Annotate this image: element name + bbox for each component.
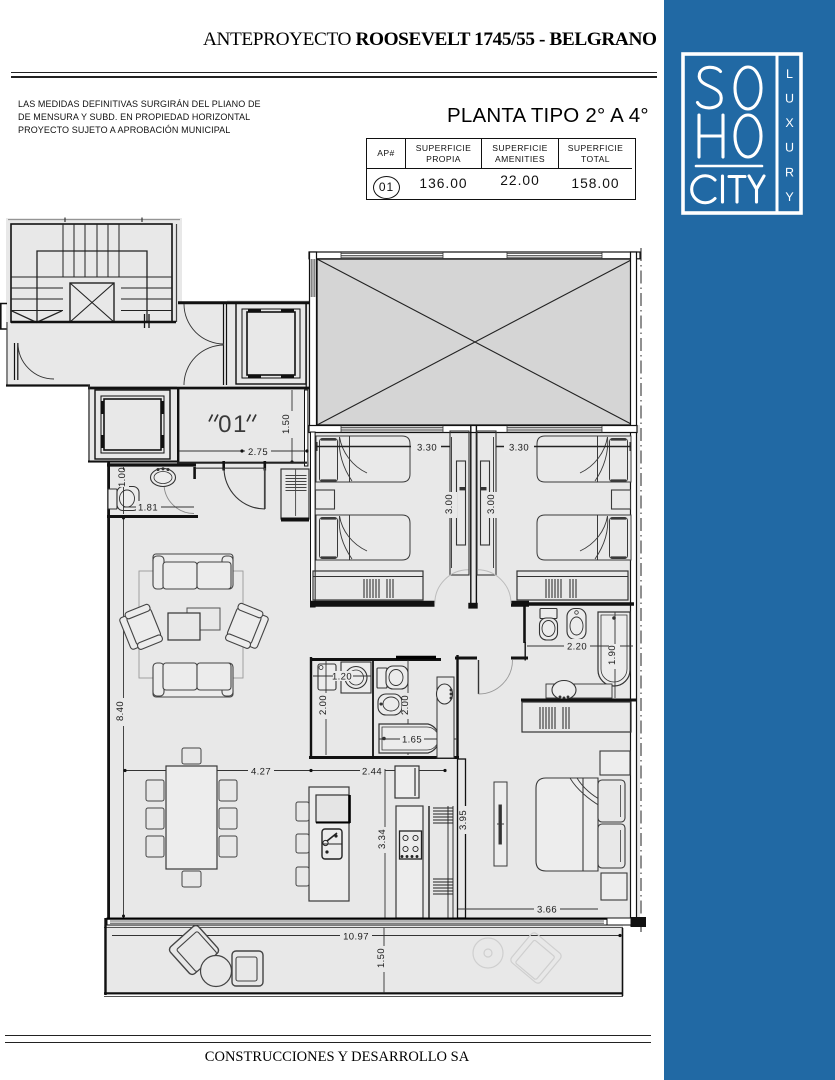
svg-text:4.27: 4.27	[251, 767, 271, 778]
svg-text:2.20: 2.20	[567, 642, 587, 653]
svg-text:2.00: 2.00	[400, 695, 411, 715]
svg-text:3.95: 3.95	[458, 810, 469, 830]
svg-text:1.65: 1.65	[402, 735, 422, 746]
svg-text:1.50: 1.50	[376, 948, 387, 968]
svg-text:1.50: 1.50	[281, 414, 292, 434]
svg-text:10.97: 10.97	[343, 932, 369, 943]
svg-text:3.30: 3.30	[509, 443, 529, 454]
svg-text:1.00: 1.00	[117, 467, 128, 487]
svg-text:3.66: 3.66	[537, 905, 557, 916]
svg-text:01: 01	[218, 411, 248, 438]
svg-text:8.40: 8.40	[115, 701, 126, 721]
svg-text:1.81: 1.81	[138, 503, 158, 514]
svg-text:3.00: 3.00	[486, 494, 497, 514]
svg-text:3.30: 3.30	[417, 443, 437, 454]
svg-text:1.20: 1.20	[332, 672, 352, 683]
svg-text:2.00: 2.00	[318, 695, 329, 715]
svg-text:3.00: 3.00	[444, 494, 455, 514]
svg-text:3.34: 3.34	[377, 829, 388, 849]
svg-text:2.44: 2.44	[362, 767, 382, 778]
svg-text:2.75: 2.75	[248, 447, 268, 458]
svg-text:1.90: 1.90	[607, 645, 618, 665]
